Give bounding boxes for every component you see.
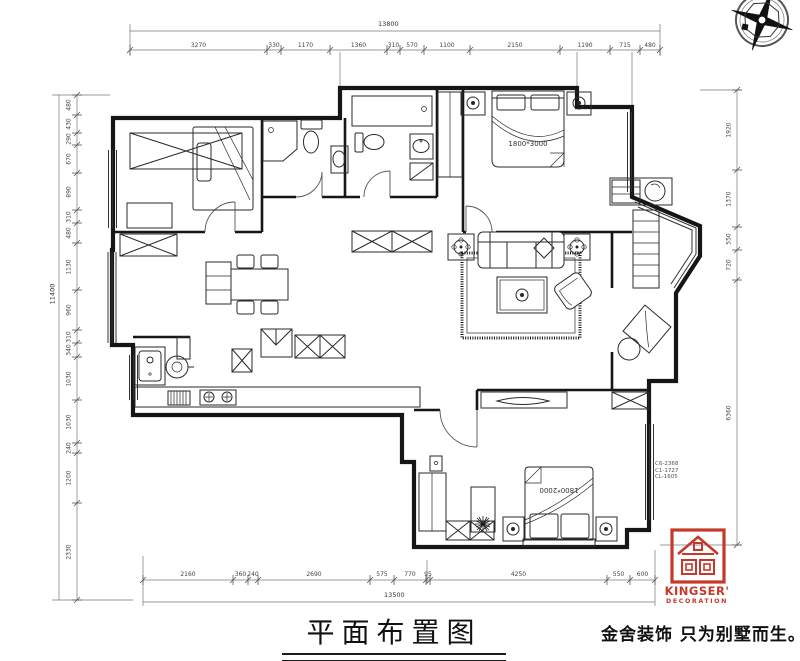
lounge-corner [618,305,671,360]
toilet [301,120,322,153]
plant-stand [564,234,590,260]
dim-segment-bottom-6: 95 [424,571,432,578]
dim-segment-bottom-0: 2160 [180,571,195,578]
dim-segment-left-3: 670 [66,153,73,164]
plant [475,516,491,532]
hall-cabinet-x [120,234,177,256]
dim-segment-left-11: 1030 [66,371,73,386]
shoe-cabinet [261,329,292,357]
lounge-chair [623,305,671,353]
exterior-walls [112,88,700,547]
window-annotation: C6-2368C1-1727CL-1605 [655,461,678,481]
dim-segment-left-9: 310 [66,331,73,342]
dim-segment-top-9: 715 [619,42,630,49]
logo-brand-name: KINGSER' [662,584,732,598]
dim-segment-top-7: 2150 [507,42,522,49]
appliance [168,391,190,405]
hall-closet [438,92,462,177]
nightstand [461,92,485,115]
kingser-logo-icon [672,530,724,582]
stove [200,390,236,405]
dim-segment-top-0: 3270 [191,42,206,49]
dim-segment-left-12: 1030 [66,414,73,429]
side-cabinet-x [352,231,432,252]
master-bedroom [461,91,591,167]
counter-bottom [135,387,420,407]
armchair [553,271,594,311]
dim-segment-right-3: 720 [726,259,733,270]
kitchen-sink [139,351,161,381]
entry-cabinet-x [295,335,345,358]
dim-segment-left-5: 310 [66,211,73,222]
brand-slogan: 金舍装饰 只为别墅而生。 [601,620,796,645]
toilet [355,133,384,152]
dim-segment-top-8: 1190 [577,42,592,49]
dim-segment-top-10: 480 [644,42,655,49]
master-bed-size-label: 1800*3000 [493,140,563,148]
dim-segment-left-4: 890 [66,186,73,197]
chair [237,301,254,314]
nightstand [596,517,617,541]
bedroom1-window [109,150,117,228]
chair [261,301,278,314]
sink [410,134,433,159]
corner-cabinet [410,163,433,180]
dining-bay-window [108,252,116,343]
dim-segment-left-10: 340 [66,344,73,355]
bathroom2 [352,96,433,180]
tv-console [481,392,567,408]
floor-plan-drawing [0,0,800,658]
fridge-x [232,349,252,372]
compass-marker [742,24,749,31]
dim-segment-bottom-3: 2690 [306,571,321,578]
shower [352,96,432,126]
sofa [478,232,564,268]
dim-overall-left: 11400 [48,284,56,305]
dim-segment-right-1: 1370 [726,191,733,206]
dim-segment-top-4: 310 [388,42,399,49]
dim-segment-left-8: 960 [66,304,73,315]
living-room [120,231,649,409]
dim-segment-left-13: 240 [66,442,73,453]
dining-table [231,269,288,300]
dim-segment-bottom-5: 770 [404,571,415,578]
dim-segment-bottom-4: 575 [376,571,387,578]
desk [127,203,172,228]
dim-segment-bottom-9: 600 [637,571,648,578]
floor-plan-page: 3270330117013603105701100215011907154802… [0,0,800,658]
bookshelf [633,210,659,288]
dim-segment-bottom-2: 240 [247,571,258,578]
double-bed [523,467,595,546]
bedroom1 [127,127,253,228]
dining-area [206,255,288,314]
dim-overall-bottom: 13500 [384,591,405,599]
kitchen [135,347,420,407]
dim-segment-right-2: 550 [726,233,733,244]
dim-segment-left-0: 480 [66,99,73,110]
dim-segment-bottom-1: 360 [235,571,246,578]
dim-overall-top: 13800 [378,20,399,28]
second-bed-size-label: 1800*2000 [524,486,594,494]
dim-segment-top-1: 330 [268,42,279,49]
dim-segment-left-7: 1130 [66,259,73,274]
master-bed [492,91,564,167]
dim-segment-top-2: 1170 [298,42,313,49]
side-table [618,338,640,360]
drawing-title-block: 平面布置图 [282,611,506,661]
corner-shower [263,121,297,161]
coffee-table [497,277,547,313]
dim-segment-bottom-8: 550 [613,571,624,578]
sideboard [206,262,231,304]
dim-segment-bottom-7: 4250 [511,571,526,578]
dim-segment-left-1: 430 [66,118,73,129]
bedroom2-window [646,424,654,520]
drawing-title: 平面布置图 [282,611,506,651]
dim-segment-right-0: 1920 [726,122,733,137]
chair [237,255,254,268]
closet-hangers [419,473,446,531]
title-underline [282,653,506,661]
chair [261,255,278,268]
wardrobe-x-small [612,392,649,409]
nightstand [503,517,524,541]
wardrobe-x [130,133,242,169]
column [430,456,442,471]
dim-segment-top-3: 1360 [351,42,366,49]
dimension-lines [52,24,742,606]
dim-segment-left-15: 2330 [66,544,73,559]
plant-stand [448,234,474,260]
dim-segment-right-4: 6360 [726,405,733,420]
dim-segment-left-6: 480 [66,227,73,238]
compass-icon [722,0,800,60]
logo-brand-sub: DECORATION [662,598,732,605]
dim-segment-left-14: 1200 [66,470,73,485]
dim-segment-top-6: 1100 [439,42,454,49]
doors [205,171,492,447]
bedroom2 [419,392,617,546]
kitchen-window [130,355,138,400]
dim-segment-top-5: 570 [406,42,417,49]
bathroom1 [263,120,348,173]
dim-segment-left-2: 290 [66,133,73,144]
